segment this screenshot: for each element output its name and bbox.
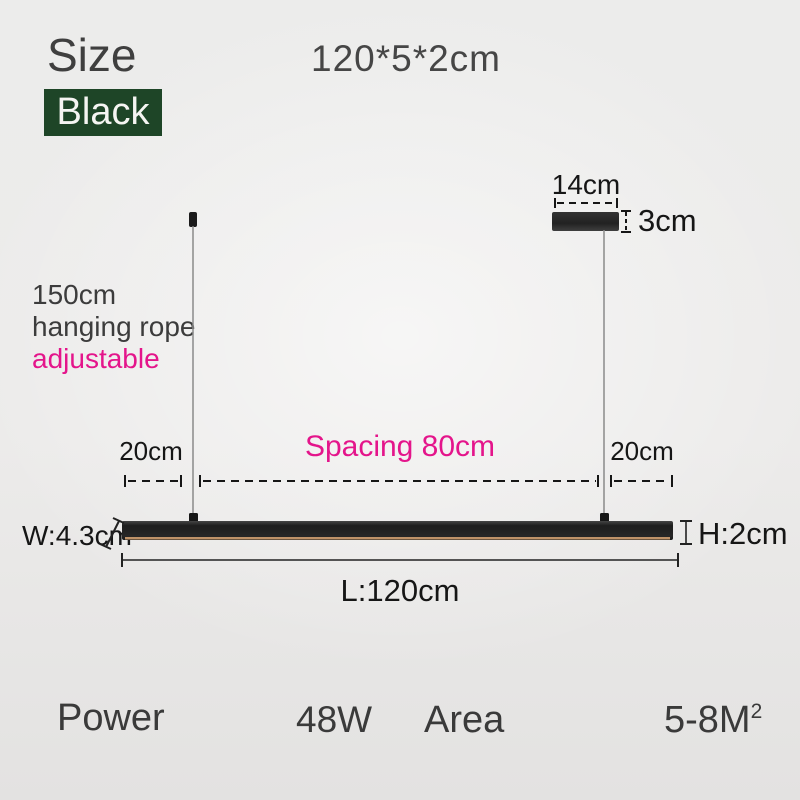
left-rope-fitting (189, 212, 197, 227)
canopy-width-measure (555, 198, 617, 208)
spacing-measure (125, 475, 672, 487)
bar-length-measure (122, 553, 678, 567)
ceiling-canopy (552, 212, 619, 231)
left-rope-connector (189, 513, 198, 522)
lamp-diagram (0, 0, 800, 800)
bar-height-measure (680, 521, 692, 544)
bar-width-mark (100, 518, 124, 549)
canopy-height-measure (621, 211, 631, 232)
lamp-light-strip (125, 537, 670, 540)
product-spec-image: Size 120*5*2cm Black 150cm hanging rope … (0, 0, 800, 800)
right-rope-connector (600, 513, 609, 522)
